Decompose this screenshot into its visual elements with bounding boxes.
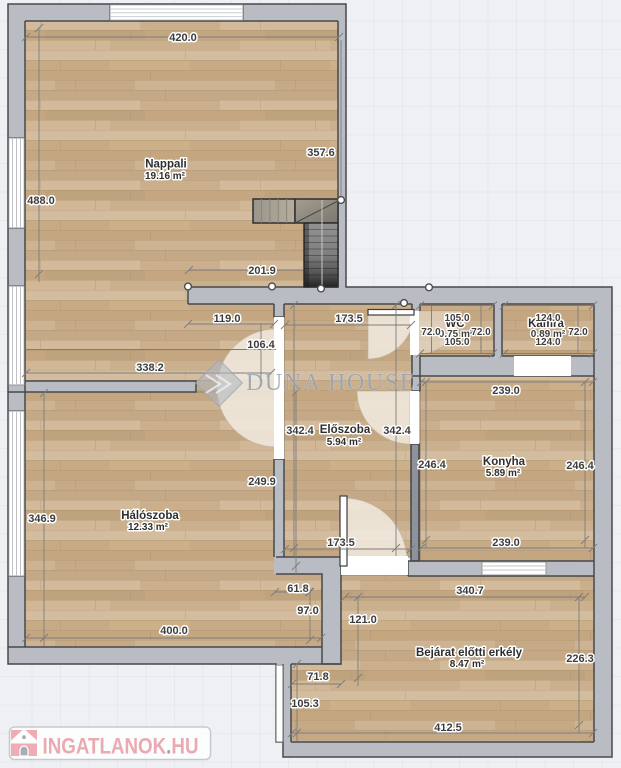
svg-text:249.9: 249.9	[248, 476, 276, 488]
svg-text:173.5: 173.5	[335, 313, 363, 325]
svg-text:61.8: 61.8	[287, 583, 308, 595]
svg-text:239.0: 239.0	[492, 385, 520, 397]
svg-text:72.0: 72.0	[471, 327, 491, 338]
svg-text:Konyha: Konyha	[483, 456, 526, 468]
svg-text:338.2: 338.2	[136, 362, 164, 374]
svg-text:121.0: 121.0	[349, 614, 377, 626]
svg-text:Nappali: Nappali	[145, 159, 187, 171]
svg-text:412.5: 412.5	[434, 722, 462, 734]
svg-text:340.7: 340.7	[456, 585, 484, 597]
svg-text:5.89 m²: 5.89 m²	[486, 468, 521, 479]
svg-text:8.47 m²: 8.47 m²	[450, 659, 485, 670]
svg-text:71.8: 71.8	[307, 671, 328, 683]
svg-text:105.0: 105.0	[444, 313, 469, 324]
svg-text:173.5: 173.5	[327, 537, 355, 549]
svg-text:5.94 m²: 5.94 m²	[327, 437, 362, 448]
svg-text:346.9: 346.9	[28, 513, 56, 525]
svg-text:226.3: 226.3	[566, 653, 594, 665]
svg-text:97.0: 97.0	[297, 605, 318, 617]
svg-text:246.4: 246.4	[418, 459, 446, 471]
svg-text:106.4: 106.4	[247, 339, 275, 351]
svg-text:105.3: 105.3	[291, 698, 319, 710]
svg-text:400.0: 400.0	[160, 625, 188, 637]
svg-text:342.4: 342.4	[383, 425, 411, 437]
svg-text:DUNA HOUSE: DUNA HOUSE	[246, 370, 416, 396]
svg-text:Hálószoba: Hálószoba	[121, 510, 179, 522]
svg-text:488.0: 488.0	[27, 195, 55, 207]
svg-text:124.0: 124.0	[535, 337, 560, 348]
svg-text:INGATLANOK.HU: INGATLANOK.HU	[43, 734, 199, 759]
svg-text:119.0: 119.0	[214, 313, 241, 325]
svg-text:Előszoba: Előszoba	[320, 424, 371, 436]
svg-text:19.16 m²: 19.16 m²	[145, 171, 186, 182]
svg-text:201.9: 201.9	[248, 265, 276, 277]
svg-text:105.0: 105.0	[444, 337, 469, 348]
svg-text:72.0: 72.0	[568, 327, 588, 338]
svg-text:239.0: 239.0	[492, 537, 520, 549]
svg-text:72.0: 72.0	[421, 327, 441, 338]
svg-text:12.33 m²: 12.33 m²	[128, 522, 169, 533]
svg-text:357.6: 357.6	[307, 147, 335, 159]
svg-text:124.0: 124.0	[535, 313, 560, 324]
svg-text:Bejárat előtti erkély: Bejárat előtti erkély	[416, 647, 523, 659]
svg-text:420.0: 420.0	[169, 32, 197, 44]
svg-text:246.4: 246.4	[566, 460, 594, 472]
svg-text:342.4: 342.4	[286, 425, 314, 437]
